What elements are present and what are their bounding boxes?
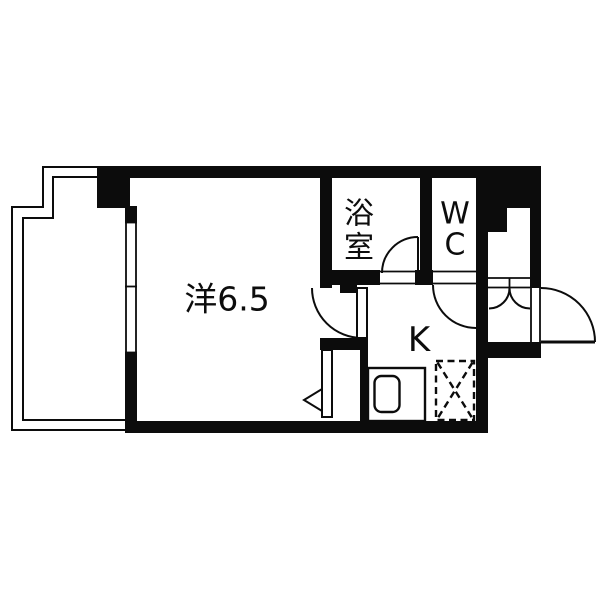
wc-label-char1: W	[440, 197, 470, 232]
bath-wc-divider-wall	[420, 178, 432, 272]
main-room-label: 洋6.5	[184, 280, 269, 319]
floor-plan-page: 洋6.5 浴 室 W C K	[0, 0, 600, 600]
left-wall-lower	[125, 352, 137, 422]
top-wall	[97, 166, 541, 178]
bottom-wall	[125, 421, 488, 433]
closet-right-wall	[360, 350, 368, 421]
floor-plan-drawing: 洋6.5 浴 室 W C K	[0, 0, 600, 600]
top-left-corner-block	[97, 166, 130, 208]
wc-label-char2: C	[445, 228, 466, 263]
kitchen-sink-bowl	[375, 376, 400, 412]
entry-bottom-wall	[488, 342, 541, 358]
right-outer-wall	[530, 166, 541, 288]
kitchen-door-hinge-stub	[340, 285, 357, 293]
left-wall-upper	[125, 206, 137, 223]
bath-label-char1: 浴	[344, 197, 374, 232]
bath-label-char2: 室	[344, 231, 374, 266]
kitchen-doorway-bottom-chunk	[320, 338, 368, 350]
bath-bottom-wall	[320, 270, 380, 285]
kitchen-label: K	[408, 320, 432, 360]
background	[0, 0, 600, 600]
washing-machine-space	[436, 361, 474, 420]
closet-door-leaf	[322, 350, 332, 417]
kitchen-door-leaf	[357, 288, 367, 338]
wc-right-wall-and-entry-divider	[476, 178, 488, 433]
